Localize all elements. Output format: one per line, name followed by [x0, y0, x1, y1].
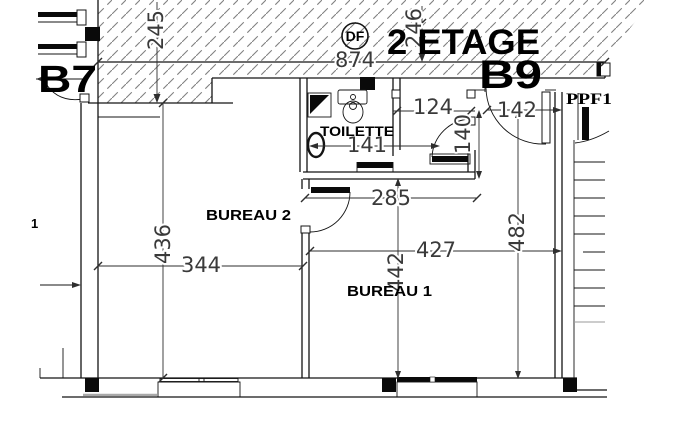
marker-1-label: 1 — [31, 216, 38, 231]
door-leaf-hall — [432, 156, 468, 162]
column — [85, 378, 99, 392]
door-leaf-bureau2 — [311, 187, 350, 193]
zone-b9-label: B9 — [479, 53, 542, 97]
window-bureau1 — [397, 377, 477, 397]
staircase — [574, 140, 605, 390]
wall-column — [360, 77, 375, 90]
room-bureau1-label: BUREAU 1 — [347, 283, 432, 300]
column — [563, 378, 577, 392]
facade-elements — [38, 10, 100, 57]
room-toilette-label: TOILETTE — [320, 123, 394, 139]
shaft-triangle — [310, 95, 329, 114]
bottom-wall — [40, 348, 607, 397]
room-bureau2-label: BUREAU 2 — [206, 207, 291, 224]
dim-427: 427 — [416, 238, 456, 262]
dim-285: 285 — [371, 186, 411, 210]
dim-482: 482 — [505, 212, 529, 252]
column — [85, 27, 100, 41]
floorplan: 245 246 874 124 142 140 141 285 436 344 … — [0, 0, 684, 446]
partition-door — [301, 179, 350, 378]
transom-bar — [357, 162, 393, 168]
dim-124: 124 — [413, 95, 453, 119]
dim-344: 344 — [181, 253, 221, 277]
right-wall — [555, 92, 589, 378]
dim-436: 436 — [151, 224, 175, 264]
floorplan-svg: 245 246 874 124 142 140 141 285 436 344 … — [0, 0, 684, 446]
dim-874: 874 — [335, 48, 375, 72]
dim-140: 140 — [451, 114, 475, 154]
detector-label: DF — [346, 28, 365, 44]
window-bureau2 — [158, 378, 240, 397]
left-wall — [40, 103, 98, 378]
door-code-label: PPF1 — [566, 91, 612, 108]
column — [382, 378, 396, 392]
zone-b7-label: B7 — [38, 59, 97, 101]
door-leaf-ppf1 — [582, 107, 589, 140]
wc-fixture — [338, 90, 367, 123]
door-leaf-b9 — [542, 92, 550, 143]
dim-245: 245 — [144, 10, 168, 50]
dim-142: 142 — [497, 98, 537, 122]
